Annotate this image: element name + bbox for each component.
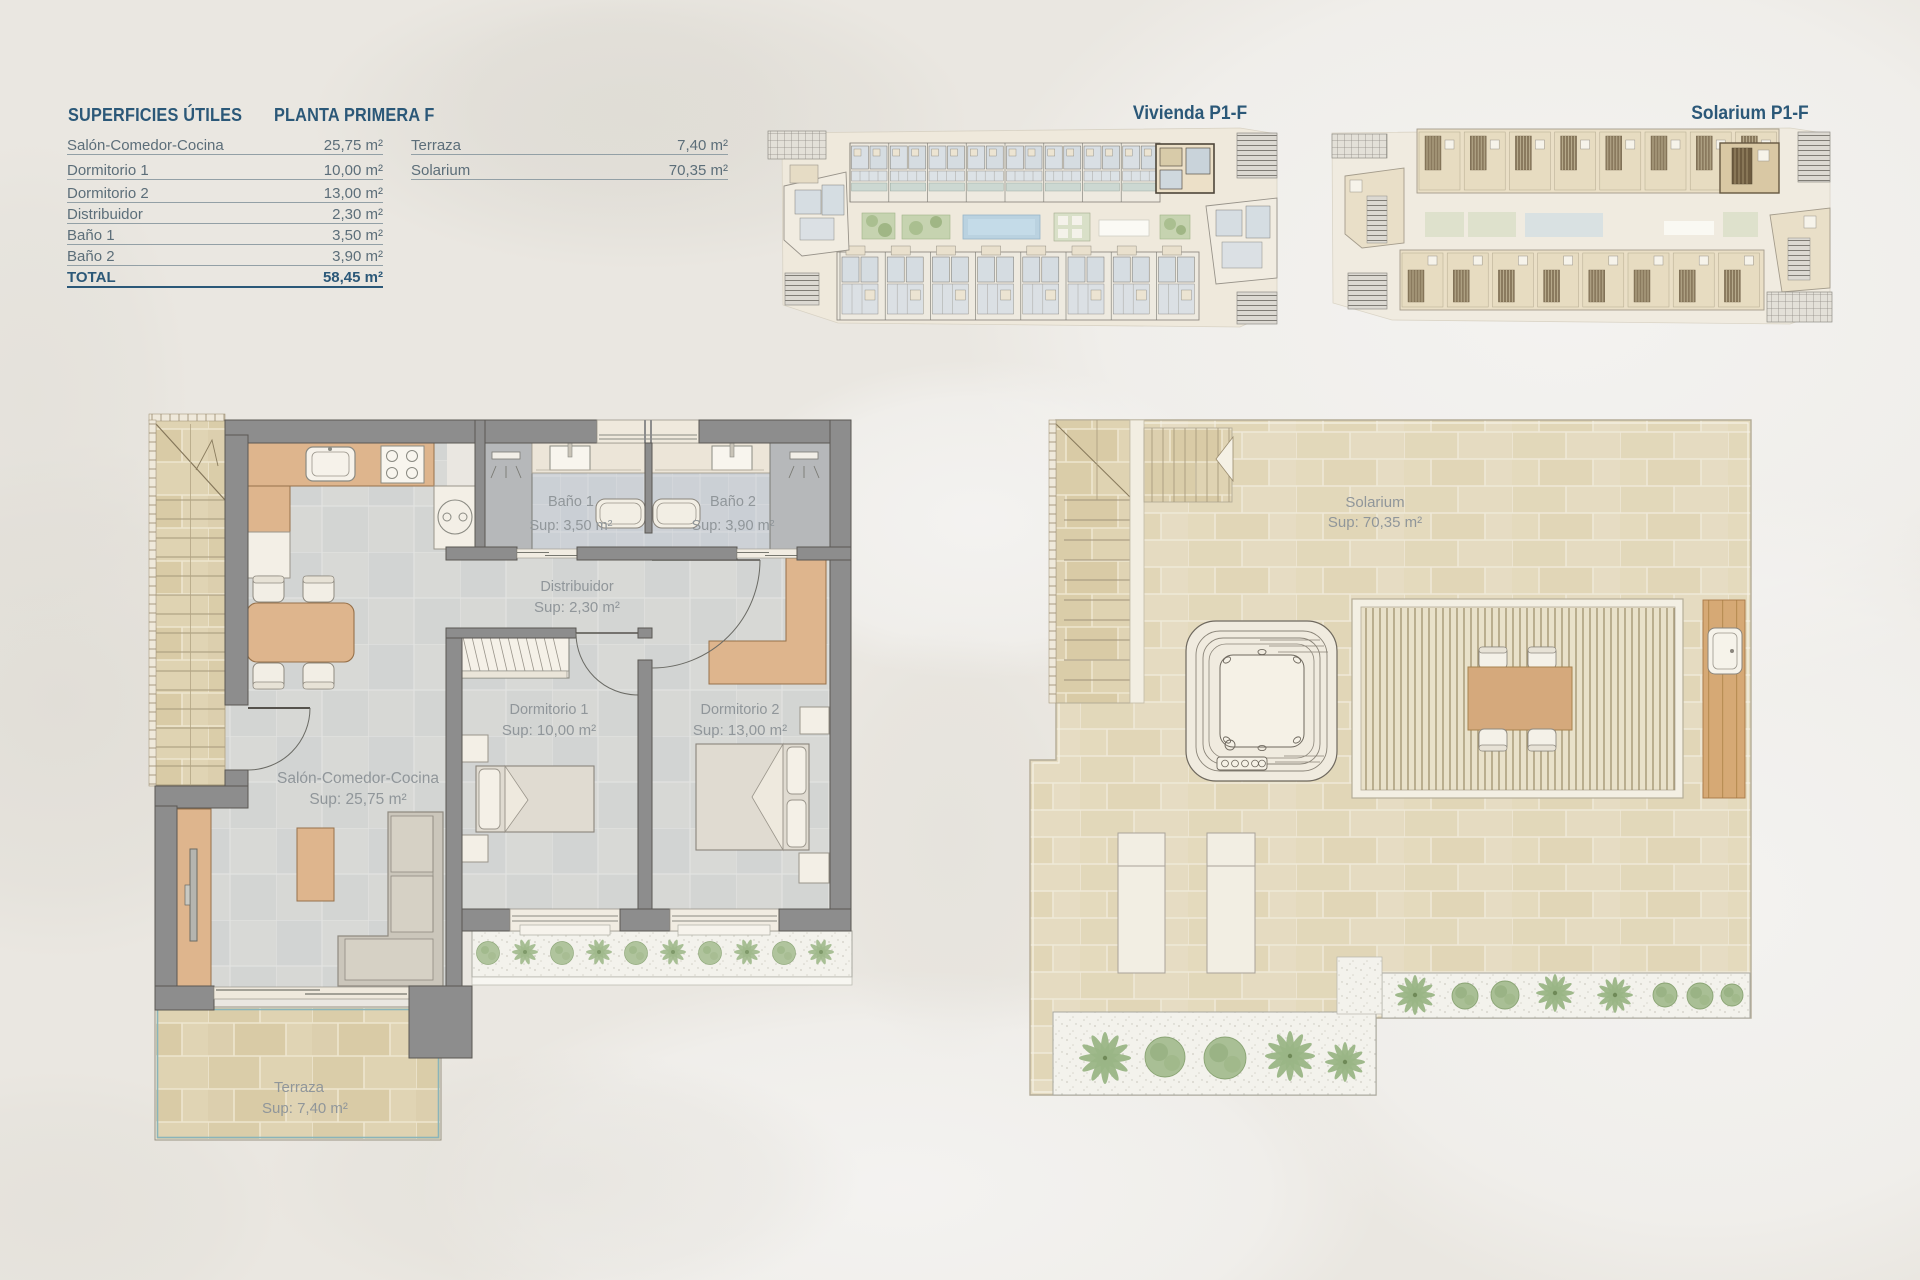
svg-text:Salón-Comedor-Cocina: Salón-Comedor-Cocina	[277, 770, 439, 787]
svg-text:Dormitorio 2: Dormitorio 2	[701, 702, 780, 718]
svg-text:Sup: 7,40 m²: Sup: 7,40 m²	[262, 1100, 348, 1117]
svg-text:Sup: 2,30 m²: Sup: 2,30 m²	[534, 599, 620, 616]
svg-text:Sup: 3,50 m²: Sup: 3,50 m²	[529, 518, 612, 534]
svg-text:Vivienda P1-F: Vivienda P1-F	[1133, 101, 1247, 123]
svg-text:Sup: 3,90 m²: Sup: 3,90 m²	[691, 518, 774, 534]
svg-text:Sup: 25,75 m²: Sup: 25,75 m²	[309, 791, 406, 808]
svg-text:Solarium: Solarium	[1345, 494, 1404, 511]
svg-text:Distribuidor: Distribuidor	[540, 579, 613, 595]
svg-text:Baño 2: Baño 2	[710, 494, 756, 510]
svg-text:Terraza: Terraza	[274, 1079, 325, 1096]
svg-text:Sup: 70,35 m²: Sup: 70,35 m²	[1328, 514, 1422, 531]
svg-text:Sup: 13,00 m²: Sup: 13,00 m²	[693, 722, 787, 739]
svg-text:Solarium P1-F: Solarium P1-F	[1691, 101, 1809, 123]
svg-text:Sup: 10,00 m²: Sup: 10,00 m²	[502, 722, 596, 739]
svg-text:Dormitorio 1: Dormitorio 1	[510, 702, 589, 718]
svg-text:Baño 1: Baño 1	[548, 494, 594, 510]
